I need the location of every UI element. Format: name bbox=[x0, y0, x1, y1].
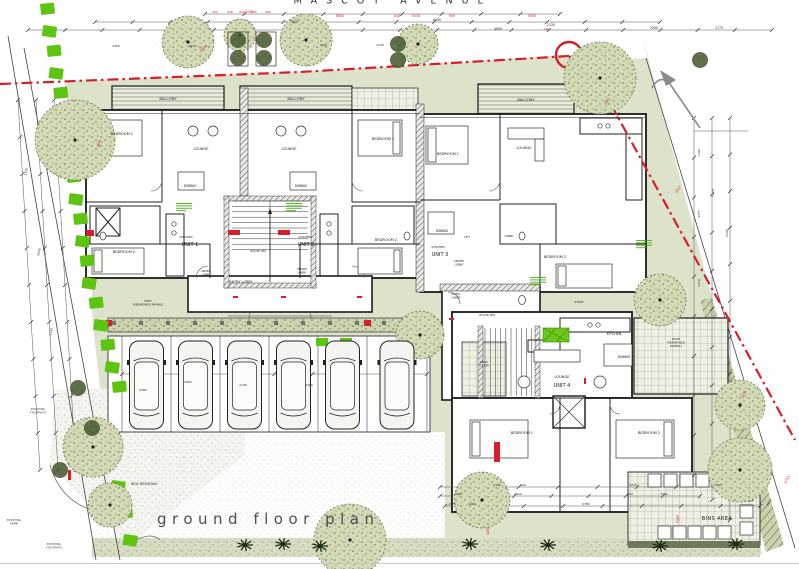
plan-label: 4280 bbox=[486, 527, 490, 535]
plan-label: STORE bbox=[575, 300, 584, 304]
tree-icon bbox=[454, 472, 510, 528]
hedge-block bbox=[75, 235, 90, 248]
plan-label: 900 bbox=[265, 10, 271, 14]
plan-label: BEDROOM 1 bbox=[511, 431, 533, 435]
plan-label: ENTRYLOBBY bbox=[451, 292, 460, 299]
plan-label: BINS AREA bbox=[702, 516, 733, 522]
shrub-icon bbox=[70, 380, 86, 396]
plan-label: 6850 bbox=[336, 14, 345, 18]
plan-label: 640 bbox=[394, 14, 400, 18]
plan-label: EQUIP. RM bbox=[479, 313, 495, 317]
shrub-icon bbox=[256, 50, 272, 66]
plan-label: LOUNGE bbox=[554, 375, 570, 379]
shrub-icon bbox=[230, 32, 246, 48]
hedge-block bbox=[93, 319, 108, 332]
plan-label: DINING bbox=[184, 184, 197, 188]
plan-label: 6390 bbox=[433, 18, 441, 22]
plan-label: 5030 bbox=[412, 14, 421, 18]
hedge-block bbox=[105, 361, 120, 374]
trellis-planter bbox=[352, 88, 418, 112]
car-icon bbox=[323, 341, 362, 429]
tree-icon bbox=[162, 16, 214, 68]
plan-label: 1265 bbox=[714, 483, 722, 487]
green-planter bbox=[543, 328, 569, 342]
plan-label: 140 bbox=[543, 27, 549, 31]
plan-label: MASCOT AVENUE bbox=[293, 0, 492, 7]
plan-label: LOBBY bbox=[504, 234, 513, 238]
plan-label: DINING bbox=[618, 355, 631, 359]
party-wall-1 bbox=[240, 88, 248, 196]
plan-label: 7800 bbox=[290, 20, 298, 24]
plan-label: DINING bbox=[436, 229, 449, 233]
tree-icon bbox=[88, 483, 132, 527]
plan-label: BEDROOM 1 bbox=[372, 137, 394, 141]
tree-icon bbox=[634, 274, 686, 326]
plan-label: BALCONY bbox=[159, 97, 177, 101]
plan-label: 600 bbox=[251, 10, 257, 14]
plan-label: 900 bbox=[449, 14, 455, 18]
plan-label: UNIT 1 bbox=[182, 242, 199, 248]
shrub-icon bbox=[230, 50, 246, 66]
hedge-block bbox=[112, 381, 127, 393]
plan-label: LOUNGE bbox=[281, 147, 297, 151]
plan-label: 5280 bbox=[139, 388, 147, 392]
hedge-block bbox=[73, 213, 88, 225]
plan-label: 3290 bbox=[650, 26, 658, 30]
site-plan-svg: ground floor plan bbox=[0, 0, 799, 569]
plan-label: 2255 bbox=[697, 210, 701, 218]
hedge-block bbox=[122, 534, 137, 547]
plan-label: BEDROOM 2 bbox=[638, 431, 660, 435]
plan-label: 640 bbox=[227, 10, 233, 14]
plan-label: 990 bbox=[520, 483, 526, 487]
plan-label: PATIO(TILED) bbox=[479, 360, 489, 367]
plan-label: SMOKELOBBY bbox=[201, 269, 211, 276]
plan-label: 2020 bbox=[514, 492, 522, 496]
plan-label: 1570 bbox=[448, 502, 456, 506]
plan-label: 2380 bbox=[112, 44, 120, 48]
hedge-block bbox=[53, 87, 68, 99]
plan-label: ground floor plan bbox=[157, 510, 379, 528]
plan-label: UNIT 3 bbox=[432, 252, 449, 258]
plan-label: LOUNGE bbox=[193, 147, 209, 151]
patio-tiled bbox=[462, 342, 506, 396]
shrub-icon bbox=[692, 52, 708, 68]
plan-label: 1080 bbox=[454, 492, 462, 496]
shrub-icon bbox=[52, 462, 68, 478]
planting-strip bbox=[108, 318, 430, 332]
plan-label: UNIT 4 bbox=[554, 383, 571, 389]
plan-label: BEDROOM 1 bbox=[111, 132, 133, 136]
hedge-block bbox=[42, 25, 57, 38]
plan-label: KITCHEN bbox=[607, 332, 622, 336]
plan-label: NEW DRIVEWAY bbox=[131, 482, 159, 486]
plan-label: 2400 bbox=[305, 383, 313, 387]
plan-label: 2130 bbox=[239, 383, 247, 387]
plan-label: 640 bbox=[239, 10, 245, 14]
plan-label: KITCHEN bbox=[180, 235, 193, 239]
hedge-block bbox=[48, 67, 63, 80]
car-icon bbox=[378, 341, 417, 429]
plan-label: ENTRY LOBBY bbox=[229, 280, 253, 284]
shrub-icon bbox=[390, 52, 406, 68]
tree-icon bbox=[715, 380, 765, 430]
plan-label: EXISTINGFOOTPATH bbox=[30, 407, 46, 415]
plan-label: 1500 bbox=[660, 492, 668, 496]
plan-label: 1060 bbox=[468, 502, 476, 506]
plan-label: 5170 bbox=[711, 189, 715, 197]
plan-label: SMOKELOBBY bbox=[454, 259, 464, 266]
plan-label: 2120 bbox=[547, 23, 555, 27]
plan-label: KITCHEN bbox=[432, 245, 445, 249]
plan-label: 900 bbox=[212, 10, 218, 14]
plan-label: 5080 bbox=[676, 515, 680, 523]
plan-label: EQUIP. RM bbox=[250, 249, 266, 253]
shrub-icon bbox=[390, 36, 406, 52]
plan-label: EXISTINGFOOTPATH bbox=[46, 542, 62, 550]
floor-plan-page: ground floor plan bbox=[0, 0, 799, 569]
plan-label: DINING bbox=[295, 184, 308, 188]
core2-wall bbox=[440, 284, 540, 291]
plan-label: 4215 bbox=[629, 483, 637, 487]
hedge-block bbox=[89, 297, 104, 309]
plan-label: UNIT 2 bbox=[298, 242, 315, 248]
plan-label: 2600 bbox=[184, 380, 192, 384]
plan-label: BEDROOM 2 bbox=[544, 255, 566, 259]
plan-label: BALCONY bbox=[517, 98, 535, 102]
plan-label: 2120 bbox=[493, 483, 501, 487]
plan-label: BEDROOM 2 bbox=[375, 238, 397, 242]
shrub-icon bbox=[256, 32, 272, 48]
plan-label: 890 bbox=[627, 492, 633, 496]
plan-label: 5500 bbox=[528, 14, 537, 18]
hedge-block bbox=[47, 45, 62, 57]
plan-label: 9780 bbox=[582, 502, 590, 506]
plan-label: BALCONY bbox=[287, 97, 305, 101]
plan-label: BEDROOM 1 bbox=[437, 152, 459, 156]
plan-label: 1590 bbox=[319, 43, 327, 47]
tree-icon bbox=[280, 14, 332, 66]
hedge-block bbox=[80, 255, 95, 267]
plan-label: LIFT bbox=[464, 235, 470, 239]
tree-icon bbox=[708, 438, 772, 502]
tree-icon bbox=[564, 42, 636, 114]
shrub-icon bbox=[84, 420, 100, 436]
hedge-block bbox=[40, 3, 55, 15]
entry-lobby-block bbox=[188, 276, 372, 312]
hedge-block bbox=[100, 339, 115, 351]
plan-label: BEDROOM 2 bbox=[113, 250, 135, 254]
plan-label: 1790 bbox=[697, 149, 701, 157]
plan-label: 2430 bbox=[697, 279, 701, 287]
plan-label: 1775 bbox=[715, 26, 723, 30]
plan-label: LOUNGE bbox=[516, 146, 532, 150]
plan-label: 4650 bbox=[494, 27, 502, 31]
hedge-block bbox=[81, 277, 96, 290]
car-icon bbox=[176, 341, 215, 429]
party-wall-2 bbox=[416, 104, 424, 292]
plan-label: 2340 bbox=[376, 43, 384, 47]
patio-permeable bbox=[634, 318, 728, 394]
car-icon bbox=[127, 341, 166, 429]
plan-label: SMOKELOBBY bbox=[297, 267, 307, 274]
plan-label: 6440 bbox=[725, 229, 729, 237]
hedge-block bbox=[68, 193, 83, 206]
plan-label: 1670 bbox=[188, 44, 196, 48]
plan-label: KITCHEN bbox=[299, 235, 312, 239]
tree-icon bbox=[35, 100, 115, 180]
